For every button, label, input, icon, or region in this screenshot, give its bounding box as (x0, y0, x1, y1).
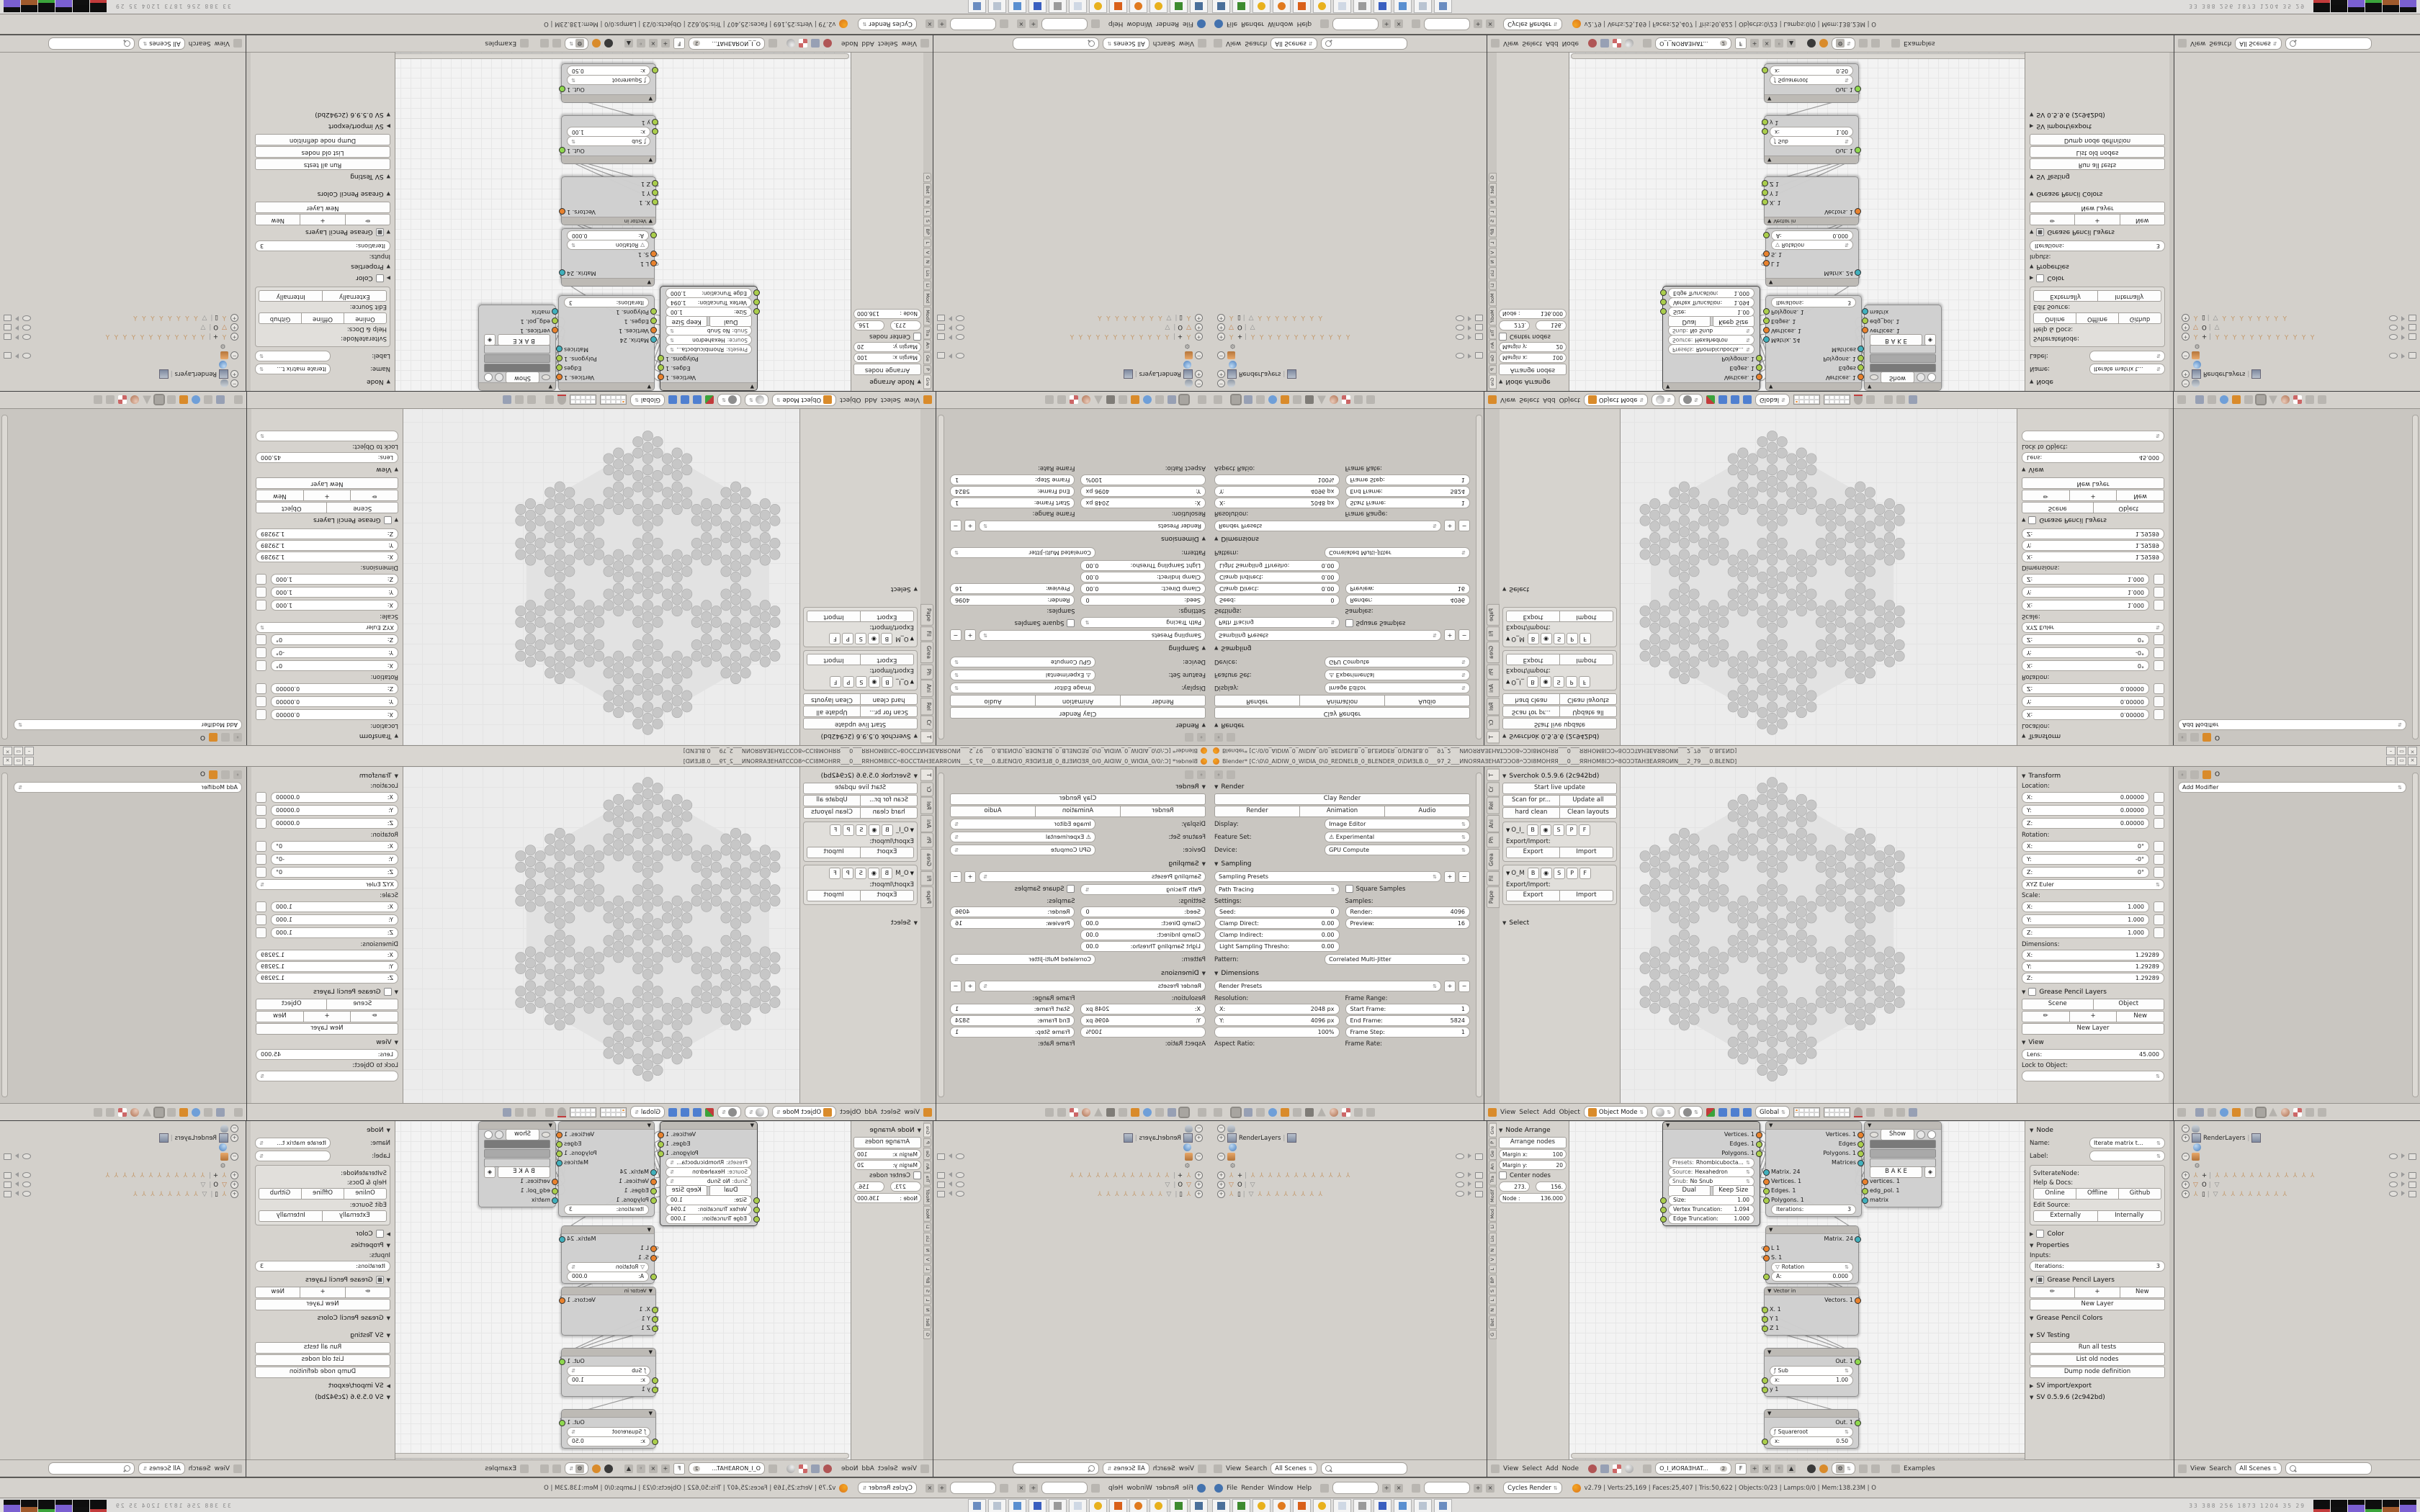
toggle-p[interactable]: P (843, 676, 854, 688)
name-select[interactable]: Iterate matrix t...⇅ (2089, 1138, 2165, 1148)
hexahedron-select[interactable]: Source:Hexahedron⇅ (665, 336, 752, 346)
pivot-dropdown[interactable]: ⇅ (1679, 1106, 1703, 1118)
ball2-icon[interactable] (1625, 1464, 1633, 1473)
menu-view[interactable]: View (2190, 1465, 2205, 1472)
lock-toggle[interactable] (2154, 927, 2164, 938)
panel-collapse-icon[interactable]: ▼ (2030, 1395, 2033, 1400)
panel-collapse-icon[interactable]: ▼ (918, 1128, 921, 1133)
ph-wrench-icon[interactable] (1305, 1108, 1314, 1117)
tree-row-o-i[interactable]: ▼O_I_B◉SPF (807, 824, 914, 836)
ph-phys-icon[interactable] (1366, 1108, 1375, 1117)
z-field[interactable]: Z:0° (271, 634, 398, 645)
new-layer-button[interactable]: New Layer (255, 1299, 390, 1310)
tab-g[interactable]: G (1489, 173, 1497, 182)
checker-icon[interactable] (1613, 40, 1621, 48)
all-scenes-dropdown[interactable]: All Scenes⇅ (1270, 37, 1317, 50)
y-field[interactable]: Y:1.29289 (256, 961, 398, 972)
global-dropdown[interactable]: Global⇅ (630, 394, 665, 406)
new-layer-button[interactable]: New Layer (2022, 477, 2164, 489)
clap-icon[interactable] (1896, 396, 1905, 405)
preset-remove-button[interactable]: − (1458, 871, 1470, 883)
node-field[interactable]: Node :136.000 (853, 309, 921, 319)
copy2-icon[interactable] (540, 40, 549, 48)
ph-chain-icon[interactable] (1293, 1108, 1301, 1117)
y-field[interactable]: Y:-0° (2022, 854, 2149, 865)
tab-rel[interactable]: Rel (1487, 698, 1500, 716)
panel-header-node-arrange[interactable]: ▼Node Arrange (1499, 378, 1567, 385)
visibility-eye-icon[interactable] (2389, 325, 2398, 330)
selectability-cursor-icon[interactable] (15, 1182, 19, 1187)
outliner-row-o[interactable]: +▽O|▽ (1213, 1180, 1485, 1189)
plus-icon[interactable]: + (1382, 20, 1391, 29)
panel-header-sverchok-0-5-9-6-2c942bd[interactable]: ▼Sverchok 0.5.9.6 (2c942bd) (803, 732, 918, 739)
lock-toggle[interactable] (2154, 574, 2164, 585)
clamp-direct-field[interactable]: Clamp Direct:0.00 (1214, 583, 1340, 594)
panel-collapse-icon[interactable]: ▼ (1214, 784, 1218, 790)
pivot-dropdown[interactable]: ⇅ (1679, 394, 1703, 406)
selectability-cursor-icon[interactable] (2401, 335, 2405, 340)
search-field[interactable] (2285, 1462, 2372, 1475)
ntree-icon[interactable] (920, 40, 929, 48)
panel-collapse-icon[interactable]: ▼ (1202, 536, 1206, 541)
panel-collapse-icon[interactable]: ▼ (387, 191, 390, 197)
panel-collapse-icon[interactable]: ▼ (2030, 1243, 2033, 1248)
menu-examples[interactable]: Examples (1904, 1465, 1935, 1472)
lock-toggle[interactable] (2154, 792, 2164, 803)
panel-header-select[interactable]: ▼Select (1502, 919, 1617, 927)
toggle-b[interactable]: B (1528, 868, 1539, 879)
margin-y-field[interactable]: Margin y:20 (1499, 1160, 1567, 1170)
panel-collapse-icon[interactable]: ▼ (914, 586, 918, 592)
feature-set-select[interactable]: ⚠ Experimental⇅ (950, 832, 1095, 842)
x-button[interactable]: + (303, 490, 351, 501)
vertex-truncation-field[interactable]: Vertex Truncation:1.094 (1668, 298, 1754, 308)
panel-header-view[interactable]: ▼View (2022, 1039, 2164, 1046)
outliner-row[interactable]: ⚙ (1, 1161, 243, 1171)
visibility-eye-icon[interactable] (22, 1153, 31, 1159)
renderability-camera-icon[interactable] (4, 1172, 12, 1179)
z-field[interactable]: Z:0° (2022, 634, 2149, 645)
node-viewer-draw[interactable]: ▼ShowB A K E◈vertices. 1edg_pol. 1matrix (478, 1121, 556, 1207)
menu-select[interactable]: Select (881, 1109, 901, 1116)
pin-icon[interactable]: ◦ (637, 1464, 645, 1473)
menu-node[interactable]: Node (1562, 1465, 1579, 1472)
taskbar-app-orange-spiral-app[interactable] (1109, 0, 1127, 13)
ph-scene-icon[interactable] (1155, 1108, 1164, 1117)
value-field[interactable]: 273. (890, 320, 921, 330)
object-mode-dropdown[interactable]: Object Mode⇅ (1584, 394, 1648, 406)
cam-icon[interactable] (1884, 396, 1893, 405)
outliner-row[interactable]: − (2177, 351, 2419, 360)
y-field[interactable]: Y:1.000 (271, 587, 398, 598)
panel-header-sv-testing[interactable]: ▼SV Testing (2030, 1332, 2165, 1339)
panel-header-sv-testing[interactable]: ▼SV Testing (255, 173, 390, 180)
copy-icon[interactable] (1859, 40, 1868, 48)
panel-collapse-icon[interactable]: ▶ (387, 276, 390, 282)
lock-toggle[interactable] (256, 683, 266, 694)
img2-icon[interactable] (811, 1464, 820, 1473)
outliner-row-x[interactable]: +⅄▯|▽⅄⅄⅄⅄⅄⅄⅄⅄ (1, 313, 243, 323)
tab-gre[interactable]: Gre (923, 374, 931, 389)
node-iterate-matrix[interactable]: ▼Vertices. 1EdgesPolygons. 1MatricesMatr… (1765, 1121, 1862, 1217)
expand-icon[interactable]: − (1195, 1153, 1203, 1161)
taskbar-app-audio-volume[interactable] (1353, 0, 1371, 13)
ph-chain-icon[interactable] (2244, 396, 2253, 405)
iterations-field[interactable]: Iterations:3 (255, 240, 390, 251)
end-frame-field[interactable]: End Frame:5824 (950, 486, 1075, 497)
node-vector-in[interactable]: ▼Vector inVectors. 1X. 1Y 1Z 1 (1764, 176, 1859, 225)
offline-button[interactable]: Offline (301, 1188, 344, 1200)
outliner-row-x[interactable]: +⅄+|⅄⅄⅄⅄⅄⅄⅄⅄⅄⅄⅄⅄ (1213, 1171, 1485, 1180)
seed-field[interactable]: Seed:0 (1214, 906, 1340, 917)
taskbar-app-display-settings[interactable] (1190, 1499, 1208, 1512)
display-select[interactable]: Image Editor⇅ (1325, 819, 1470, 829)
y-field[interactable]: Y:4096 px (1214, 1015, 1340, 1026)
panel-header-sv-0-5-9-6-2c942bd[interactable]: ▼SV 0.5.9.6 (2c942bd) (2030, 111, 2165, 118)
squareroot-select[interactable]: ƒSquareroot⇅ (1770, 76, 1853, 86)
panel-collapse-icon[interactable]: ▶ (387, 123, 390, 129)
search-field[interactable] (48, 1462, 135, 1475)
panel-collapse-icon[interactable]: ▶ (387, 1231, 390, 1237)
panel-header-grease-pencil-layers[interactable]: ▼Grease Pencil Layers (2022, 516, 2164, 524)
node-header[interactable]: ▼ (1766, 278, 1858, 286)
menu-search[interactable]: Search (1153, 40, 1175, 48)
x-field[interactable]: X:0.00000 (271, 709, 398, 720)
scrollbar-horizontal[interactable] (1571, 53, 2028, 59)
renderability-camera-icon[interactable] (4, 333, 12, 340)
preset-remove-button[interactable]: − (950, 871, 962, 883)
expand-icon[interactable]: − (1217, 1125, 1225, 1133)
selectability-cursor-icon[interactable] (1468, 354, 1471, 359)
tab-s[interactable]: S (1489, 1287, 1497, 1295)
renderability-camera-icon[interactable] (937, 324, 945, 330)
ph-scene-icon[interactable] (1256, 1108, 1265, 1117)
close-icon[interactable]: × (1762, 1464, 1771, 1473)
ph-tri-icon[interactable] (2269, 1108, 2277, 1117)
preview-field[interactable]: Preview:16 (950, 918, 1075, 929)
rotation-select[interactable]: ▽Rotation⇅ (1771, 240, 1853, 251)
selectability-cursor-icon[interactable] (949, 1153, 952, 1158)
iterations-field[interactable]: Iterations:3 (2030, 240, 2165, 251)
menu-search[interactable]: Search (2209, 40, 2231, 48)
ph-chain-icon[interactable] (167, 396, 176, 405)
ball-dropdown[interactable]: ⇅ (1652, 1106, 1675, 1118)
x-field[interactable]: X:0.00000 (2022, 792, 2149, 803)
ph-world-icon[interactable] (192, 1108, 200, 1117)
tab-v[interactable]: V (1489, 1255, 1497, 1264)
color-swatch[interactable] (484, 1158, 550, 1167)
cube-icon[interactable] (209, 770, 218, 779)
tab-n[interactable]: N (1489, 197, 1497, 207)
panel-collapse-icon[interactable]: ▼ (1214, 861, 1218, 867)
taskbar-app-calculator[interactable] (1414, 0, 1432, 13)
expand-icon[interactable]: + (1195, 1134, 1203, 1142)
toggle-f[interactable]: F (830, 824, 841, 836)
outliner-row-x[interactable]: +⅄▯|▽⅄⅄⅄⅄⅄⅄⅄⅄ (2177, 1189, 2419, 1199)
pattern-select[interactable]: Correlated Multi-Jitter⇅ (950, 547, 1095, 558)
clamp-direct-field[interactable]: Clamp Direct:0.00 (1081, 918, 1206, 929)
panel-header-sv-import-export[interactable]: ▶SV import/export (255, 122, 390, 130)
dual-button[interactable]: Dual (710, 316, 753, 328)
outliner-row[interactable]: − (1213, 351, 1485, 360)
screw-icon[interactable] (221, 733, 230, 742)
x-field[interactable]: x:1.00 (567, 127, 650, 138)
toggle-b[interactable]: B (881, 633, 892, 644)
axf-icon[interactable] (1743, 1108, 1752, 1117)
menu-search[interactable]: Search (189, 1465, 211, 1472)
a-field[interactable]: A:0.000 (567, 1272, 649, 1282)
expand-icon[interactable]: + (230, 314, 238, 322)
lock-toggle[interactable] (256, 805, 266, 816)
visibility-eye-icon[interactable] (2389, 1191, 2398, 1197)
plus-icon[interactable]: + (1750, 40, 1759, 48)
new-button[interactable]: New (255, 1287, 300, 1298)
tab-cr[interactable]: Cr (920, 782, 933, 796)
bake-settings-icon[interactable]: ◈ (1924, 335, 1936, 346)
node-header[interactable]: ▼ (1663, 1122, 1760, 1130)
node-field[interactable]: Node :136.000 (1499, 1193, 1567, 1203)
tab-grea[interactable]: Grea (920, 642, 933, 663)
tab-l[interactable]: L (1489, 1296, 1497, 1305)
panel-header-grease-pencil-layers[interactable]: ▼Grease Pencil Layers (2030, 1276, 2165, 1284)
tab-g[interactable]: G (923, 1330, 931, 1339)
name-field[interactable] (950, 18, 996, 30)
list-old-nodes-button[interactable]: List old nodes (255, 146, 390, 158)
squareroot-select[interactable]: ƒSquareroot⇅ (1770, 1427, 1853, 1437)
lock-toggle[interactable] (256, 574, 266, 585)
menu-search[interactable]: Search (1245, 40, 1267, 48)
clean-layouts-button[interactable]: Clean layouts (1560, 807, 1617, 819)
tree-icon[interactable] (2178, 1464, 2187, 1473)
new-button[interactable]: New (2120, 1287, 2165, 1298)
panel-header-render[interactable]: ▼Render (950, 721, 1206, 729)
renderability-camera-icon[interactable] (937, 333, 945, 340)
expand-icon[interactable]: + (1217, 1190, 1225, 1198)
y-field[interactable]: Y:4096 px (1081, 486, 1206, 497)
expand-icon[interactable]: + (1195, 1181, 1203, 1189)
scrollbar[interactable] (938, 773, 944, 1097)
grid-icon[interactable] (1866, 396, 1875, 405)
taskbar-app-blender[interactable] (1273, 0, 1291, 13)
panel-collapse-icon[interactable]: ▶ (2030, 1383, 2033, 1389)
online-button[interactable]: Online (344, 312, 387, 324)
a-field[interactable]: A:0.000 (1771, 1272, 1853, 1282)
dark-icon[interactable] (1807, 1464, 1816, 1473)
img2-icon[interactable] (1600, 1464, 1609, 1473)
import-button[interactable]: Import (1560, 654, 1613, 665)
menu-view[interactable]: View (1503, 40, 1518, 48)
renderability-camera-icon[interactable] (2408, 352, 2416, 359)
toggle-p[interactable]: P (1567, 868, 1578, 879)
tab-p[interactable]: P (923, 366, 931, 374)
outliner-row-renderlayers[interactable]: +RenderLayers| (1213, 369, 1485, 379)
cube-icon[interactable] (923, 396, 932, 405)
tab-cr[interactable]: Cr (920, 716, 933, 730)
y-field[interactable]: Y:4096 px (1214, 486, 1340, 497)
tab-s[interactable]: S (1489, 217, 1497, 225)
all-scenes-dropdown[interactable]: All Scenes⇅ (2235, 37, 2281, 50)
toggle-f[interactable]: F (1579, 868, 1591, 879)
global-dropdown[interactable]: Global⇅ (1755, 1106, 1790, 1118)
tab-n[interactable]: N (923, 258, 931, 267)
expand-icon[interactable]: + (1217, 314, 1225, 322)
outliner-row-x[interactable]: +⅄▯|▽⅄⅄⅄⅄⅄⅄⅄⅄ (2177, 313, 2419, 323)
ph-tri-icon[interactable] (143, 1108, 151, 1117)
renderability-camera-icon[interactable] (2408, 315, 2416, 321)
taskbar-app-image-viewer[interactable] (1394, 0, 1412, 13)
x-field[interactable]: X:1.29289 (256, 552, 398, 562)
tab-tra[interactable]: Tra (923, 1173, 931, 1186)
layers-grid[interactable] (1824, 1107, 1850, 1117)
scene-button[interactable]: Scene (327, 999, 399, 1010)
square-samples-checkbox[interactable]: Square Samples (1345, 885, 1471, 893)
scene-icon[interactable] (1412, 20, 1420, 29)
panel-header-dimensions[interactable]: ▼Dimensions (1214, 970, 1470, 977)
panel-collapse-icon[interactable]: ▼ (914, 773, 918, 779)
update-all-button[interactable]: Update all (803, 706, 860, 717)
renderability-camera-icon[interactable] (2408, 1172, 2416, 1179)
margin-y-field[interactable]: Margin y:20 (853, 1160, 921, 1170)
ph-chain-icon[interactable] (167, 1108, 176, 1117)
ph-ball-icon[interactable] (1330, 396, 1338, 405)
node-math-sub[interactable]: ▼Out. 1ƒSub⇅x:1.00y 1 (561, 115, 656, 164)
pin-icon[interactable]: ◦ (1775, 1464, 1783, 1473)
panel-header-grease-pencil-colors[interactable]: ▼Grease Pencil Colors (2030, 190, 2165, 197)
z-field[interactable]: Z:1.29289 (2022, 528, 2164, 539)
bake-button[interactable]: B A K E (498, 335, 550, 346)
node-math-sub[interactable]: ▼Out. 1ƒSub⇅x:1.00y 1 (561, 1348, 656, 1397)
object-button[interactable]: Object (256, 502, 327, 513)
pin-icon[interactable]: ◦ (233, 770, 242, 779)
visibility-eye-icon[interactable] (22, 1172, 31, 1178)
name-field[interactable] (1424, 18, 1470, 30)
layers-grid[interactable] (600, 1107, 627, 1117)
expand-icon[interactable]: − (2182, 1153, 2190, 1161)
toggle-p[interactable]: P (1566, 824, 1577, 836)
renderability-camera-icon[interactable] (4, 324, 12, 330)
panel-collapse-icon[interactable]: ▼ (1499, 1128, 1502, 1133)
eye-icon[interactable] (542, 375, 550, 381)
rhombicuboctahedron-select[interactable]: Presets:Rhombicuboctahedron⇅ (665, 1158, 752, 1168)
panel-collapse-icon[interactable]: ▶ (2030, 276, 2033, 282)
tab-mod[interactable]: Mod (923, 1206, 931, 1222)
x-field[interactable]: X:1.29289 (2022, 552, 2164, 562)
fake-user-button[interactable]: F (1735, 38, 1747, 50)
outliner-row[interactable]: ⚙ (935, 341, 1207, 351)
toggle-f[interactable]: F (1579, 633, 1591, 644)
tab-pape[interactable]: Pape (1487, 886, 1500, 908)
value-field[interactable]: 273. (1499, 1182, 1530, 1192)
z-field[interactable]: Z:0.00000 (271, 818, 398, 829)
no-snub-select[interactable]: Snub:No Snub⇅ (1668, 326, 1754, 336)
preset-remove-button[interactable]: − (950, 630, 962, 642)
render-presets-select[interactable]: Render Presets⇅ (1214, 521, 1441, 531)
z-field[interactable]: Z:1.29289 (2022, 973, 2164, 984)
taskbar-app-blender[interactable] (1129, 0, 1147, 13)
externally-button[interactable]: Externally (323, 1210, 387, 1222)
eye-icon[interactable] (542, 1132, 550, 1138)
panel-collapse-icon[interactable]: ▼ (387, 379, 390, 384)
panel-collapse-icon[interactable]: ▼ (2030, 191, 2033, 197)
z-field[interactable]: Z:1.29289 (256, 973, 398, 984)
toggle-s[interactable]: S (1554, 868, 1565, 879)
viewer-color-a[interactable] (1917, 374, 1925, 382)
rotation-select[interactable]: ▽Rotation⇅ (567, 1262, 649, 1272)
x-field[interactable]: x:1.00 (1770, 1375, 1853, 1385)
show-button[interactable]: Show (1881, 372, 1914, 384)
vertex-truncation-field[interactable]: Vertex Truncation:1.094 (665, 1205, 752, 1215)
expand-icon[interactable]: + (2182, 1190, 2190, 1198)
rhombicuboctahedron-select[interactable]: Presets:Rhombicuboctahedron⇅ (665, 345, 752, 355)
cycles-render-dropdown[interactable]: Cycles Render⇅ (1503, 18, 1562, 30)
panel-header-grease-pencil-colors[interactable]: ▼Grease Pencil Colors (255, 190, 390, 197)
global-dropdown[interactable]: Global⇅ (1755, 394, 1790, 406)
node-math-sub[interactable]: ▼Out. 1ƒSub⇅x:1.00y 1 (1764, 1348, 1859, 1397)
outliner-row[interactable]: ⚙ (1, 341, 243, 351)
tab-t[interactable]: T (1487, 769, 1500, 781)
taskbar-app-terminal[interactable] (1434, 1499, 1452, 1512)
panel-header-color[interactable]: ▶Color (255, 1230, 390, 1238)
tab-gre[interactable]: Gre (923, 1123, 931, 1138)
pattern-select[interactable]: Correlated Multi-Jitter⇅ (1325, 547, 1470, 558)
menu-help[interactable]: Help (1108, 21, 1124, 28)
tab-pape[interactable]: Pape (920, 604, 933, 626)
panel-collapse-icon[interactable]: ▼ (395, 467, 398, 472)
taskbar-app-image-viewer[interactable] (1008, 0, 1026, 13)
x-button[interactable]: ✏ (2030, 214, 2075, 225)
tab-grea[interactable]: Grea (1487, 642, 1500, 663)
tab-grea[interactable]: Grea (1487, 849, 1500, 870)
ntree-icon[interactable] (1491, 1464, 1500, 1473)
taskbar-app-chrome[interactable] (1149, 1499, 1168, 1512)
panel-header-node[interactable]: ▼Node (255, 1127, 390, 1134)
tab-li[interactable]: Li (923, 1222, 931, 1231)
update-all-button[interactable]: Update all (1560, 795, 1617, 806)
x-field[interactable]: X:2048 px (1081, 1004, 1206, 1014)
tree-row-o-m[interactable]: ▼O_MB◉SPF (1506, 633, 1613, 644)
ntree-icon[interactable] (768, 1464, 777, 1473)
taskbar-app-notepad[interactable] (1069, 0, 1087, 13)
ph-check-icon[interactable] (2293, 396, 2302, 405)
search-field[interactable] (1013, 1462, 1099, 1475)
ph-scene-icon[interactable] (2208, 1108, 2216, 1117)
x-field[interactable]: X:2048 px (1214, 498, 1340, 508)
taskbar-app-image-viewer[interactable] (1394, 1499, 1412, 1512)
end-frame-field[interactable]: End Frame:5824 (1345, 1015, 1471, 1026)
panel-header-view[interactable]: ▼View (256, 466, 398, 473)
blender-icon[interactable] (839, 20, 848, 29)
ph-scene-icon[interactable] (1155, 396, 1164, 405)
label-select[interactable]: ⇅ (255, 1151, 331, 1161)
menu-add[interactable]: Add (861, 40, 874, 48)
clap-icon[interactable] (1896, 1108, 1905, 1117)
axb-icon[interactable] (1718, 396, 1727, 405)
frame-step-field[interactable]: Frame Step:1 (1345, 474, 1471, 485)
blender-icon[interactable] (1572, 1484, 1581, 1493)
internally-button[interactable]: Internally (259, 1210, 323, 1222)
ph-part-icon[interactable] (106, 1108, 115, 1117)
tab-li[interactable]: Li (923, 280, 931, 289)
search-field[interactable] (48, 37, 135, 50)
propsmenu-icon[interactable] (234, 396, 243, 405)
value-field[interactable]: 100% (1214, 474, 1340, 485)
margin-x-field[interactable]: Margin x:100 (1499, 353, 1567, 363)
ph-world-icon[interactable] (192, 396, 200, 405)
selectability-cursor-icon[interactable] (949, 1191, 952, 1196)
ph-imgs-icon[interactable] (2195, 1108, 2204, 1117)
propsmenu-icon[interactable] (2177, 1108, 2186, 1117)
panel-collapse-icon[interactable]: ▼ (1202, 645, 1206, 651)
